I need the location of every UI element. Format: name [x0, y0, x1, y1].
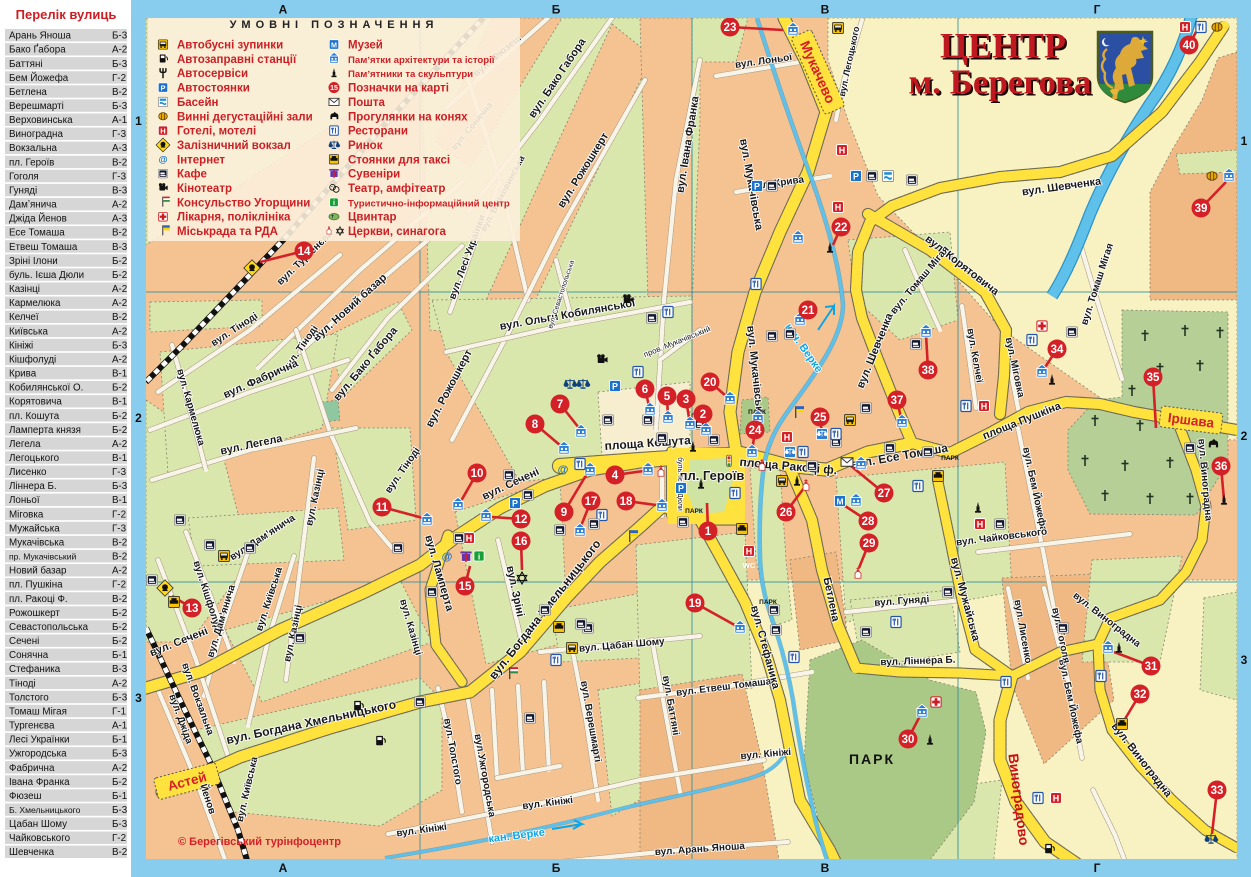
svg-text:Залізничний вокзал: Залізничний вокзал	[177, 140, 291, 152]
svg-text:А-2: А-2	[112, 200, 127, 211]
svg-text:29: 29	[863, 538, 876, 550]
svg-text:Сувеніри: Сувеніри	[348, 169, 400, 181]
svg-text:А-3: А-3	[112, 143, 128, 154]
svg-text:Ужгородська: Ужгородська	[9, 749, 67, 760]
svg-text:3: 3	[683, 394, 689, 406]
svg-text:Лесі Українки: Лесі Українки	[9, 735, 70, 746]
svg-text:В-2: В-2	[112, 847, 127, 858]
svg-text:Шевченка: Шевченка	[9, 847, 55, 858]
svg-text:12: 12	[515, 514, 528, 526]
svg-text:Міговка: Міговка	[9, 509, 44, 520]
svg-text:А-2: А-2	[112, 326, 127, 337]
svg-text:Цабан Шому: Цабан Шому	[9, 819, 67, 830]
svg-text:пл. Пушкіна: пл. Пушкіна	[9, 580, 63, 591]
svg-text:В-3: В-3	[112, 185, 128, 196]
svg-text:Б-2: Б-2	[112, 411, 127, 422]
svg-text:Винні дегустаційні зали: Винні дегустаційні зали	[177, 111, 313, 123]
svg-text:Міськрада та РДА: Міськрада та РДА	[177, 226, 278, 238]
svg-text:Б-3: Б-3	[112, 692, 128, 703]
svg-text:А-2: А-2	[112, 45, 127, 56]
svg-text:Позначки на карті: Позначки на карті	[348, 83, 449, 95]
svg-text:Інтернет: Інтернет	[177, 154, 225, 166]
svg-text:Легоцького: Легоцького	[9, 453, 60, 464]
svg-text:6: 6	[642, 384, 648, 396]
svg-text:27: 27	[878, 488, 891, 500]
svg-text:38: 38	[922, 365, 935, 377]
svg-text:Б. Хмельницького: Б. Хмельницького	[9, 805, 81, 815]
svg-text:Б: Б	[552, 3, 561, 17]
svg-text:Мужайська: Мужайська	[9, 523, 60, 534]
svg-text:Б-2: Б-2	[112, 425, 127, 436]
svg-text:Г-1: Г-1	[112, 706, 126, 717]
svg-text:31: 31	[1145, 661, 1158, 673]
svg-text:ЦЕНТР: ЦЕНТР	[940, 26, 1066, 66]
svg-text:Г-3: Г-3	[112, 467, 127, 478]
svg-text:Гуняді: Гуняді	[9, 185, 37, 196]
svg-text:Б-2: Б-2	[112, 383, 127, 394]
svg-text:17: 17	[585, 496, 598, 508]
svg-text:18: 18	[620, 496, 633, 508]
svg-text:Г-3: Г-3	[112, 523, 127, 534]
svg-text:Перелік вулиць: Перелік вулиць	[16, 7, 117, 22]
svg-text:Ринок: Ринок	[348, 140, 383, 152]
svg-text:Г: Г	[1094, 3, 1101, 17]
svg-text:34: 34	[1051, 344, 1064, 356]
svg-text:В-1: В-1	[112, 495, 127, 506]
svg-text:Б-3: Б-3	[112, 31, 128, 42]
svg-text:А: А	[279, 3, 288, 17]
svg-text:Сонячна: Сонячна	[9, 650, 49, 661]
svg-text:В: В	[821, 861, 830, 875]
svg-text:Б-2: Б-2	[112, 270, 127, 281]
svg-text:А-2: А-2	[112, 439, 127, 450]
svg-text:2: 2	[1241, 429, 1248, 443]
svg-text:Київська: Київська	[9, 326, 48, 337]
svg-text:Б-3: Б-3	[112, 481, 128, 492]
svg-text:39: 39	[1195, 203, 1208, 215]
svg-text:Казінці: Казінці	[9, 284, 40, 295]
svg-text:Ламперта князя: Ламперта князя	[9, 425, 81, 436]
svg-text:В-1: В-1	[112, 397, 127, 408]
svg-text:Автобусні зупинки: Автобусні зупинки	[177, 40, 283, 52]
svg-text:Новий базар: Новий базар	[9, 566, 67, 577]
svg-text:пр. Мукачівський: пр. Мукачівський	[9, 552, 76, 562]
svg-text:Вокзальна: Вокзальна	[9, 143, 58, 154]
svg-text:Прогулянки на конях: Прогулянки на конях	[348, 111, 468, 123]
svg-text:пл. Ракоці Ф.: пл. Ракоці Ф.	[9, 594, 68, 605]
svg-text:26: 26	[780, 507, 793, 519]
svg-text:Басейн: Басейн	[177, 97, 219, 109]
svg-text:Б-3: Б-3	[112, 340, 128, 351]
svg-text:Б-1: Б-1	[112, 650, 127, 661]
svg-text:2: 2	[700, 409, 706, 421]
svg-text:10: 10	[471, 468, 484, 480]
svg-text:Автосервіси: Автосервіси	[177, 68, 248, 80]
svg-text:Театр, амфітеатр: Театр, амфітеатр	[348, 183, 445, 195]
svg-text:Готелі, мотелі: Готелі, мотелі	[177, 126, 256, 138]
svg-text:Б: Б	[552, 861, 561, 875]
svg-text:В-3: В-3	[112, 664, 128, 675]
svg-text:Г-2: Г-2	[112, 833, 126, 844]
svg-text:Виноградна: Виноградна	[9, 129, 63, 140]
svg-text:В-2: В-2	[112, 537, 127, 548]
svg-text:9: 9	[561, 507, 567, 519]
svg-text:буль. Ієша Дюли: буль. Ієша Дюли	[9, 270, 84, 281]
svg-text:Б-3: Б-3	[112, 805, 128, 816]
svg-text:21: 21	[802, 305, 815, 317]
svg-text:Томаш Мігая: Томаш Мігая	[9, 706, 67, 717]
svg-text:Г-2: Г-2	[112, 580, 126, 591]
svg-text:24: 24	[749, 425, 762, 437]
svg-text:1: 1	[705, 526, 712, 538]
svg-text:Консульство Угорщини: Консульство Угорщини	[177, 197, 310, 209]
svg-text:1: 1	[135, 114, 142, 128]
svg-text:1: 1	[1241, 134, 1248, 148]
svg-text:Кінотеатр: Кінотеатр	[177, 183, 232, 195]
svg-text:8: 8	[532, 419, 539, 431]
svg-text:15: 15	[330, 85, 338, 92]
svg-text:36: 36	[1215, 461, 1228, 473]
svg-text:© Берегівський турінфоцентр: © Берегівський турінфоцентр	[178, 836, 341, 848]
svg-text:3: 3	[135, 691, 142, 705]
svg-text:Верховинська: Верховинська	[9, 115, 73, 126]
svg-text:19: 19	[689, 598, 702, 610]
svg-text:23: 23	[724, 22, 737, 34]
svg-text:А-1: А-1	[112, 115, 127, 126]
svg-text:37: 37	[891, 395, 904, 407]
svg-text:Б-3: Б-3	[112, 101, 128, 112]
svg-text:Сечені: Сечені	[9, 636, 39, 647]
svg-text:Г-2: Г-2	[112, 509, 126, 520]
svg-text:Кобилянської О.: Кобилянської О.	[9, 383, 83, 394]
svg-text:20: 20	[704, 377, 717, 389]
svg-text:Б-1: Б-1	[112, 791, 127, 802]
svg-text:Легела: Легела	[9, 439, 41, 450]
svg-text:Памʼятники та скульптури: Памʼятники та скульптури	[348, 69, 473, 80]
svg-text:Есе Томаша: Есе Томаша	[9, 228, 65, 239]
svg-text:Арань Яноша: Арань Яноша	[9, 31, 71, 42]
svg-text:В-2: В-2	[112, 228, 127, 239]
svg-text:25: 25	[814, 412, 827, 424]
svg-text:Б-2: Б-2	[112, 622, 127, 633]
svg-text:Б-3: Б-3	[112, 819, 128, 830]
svg-text:А-2: А-2	[112, 678, 127, 689]
svg-text:Тіноді: Тіноді	[9, 678, 36, 689]
svg-text:Бетлена: Бетлена	[9, 87, 47, 98]
svg-text:5: 5	[664, 391, 671, 403]
svg-text:Г-3: Г-3	[112, 171, 127, 182]
svg-text:Рожошкерт: Рожошкерт	[9, 608, 60, 619]
svg-text:В-2: В-2	[112, 552, 127, 563]
svg-text:А-2: А-2	[112, 566, 127, 577]
svg-text:Чайковського: Чайковського	[9, 833, 71, 844]
svg-text:Бако Ґабора: Бако Ґабора	[9, 44, 66, 56]
svg-text:Церкви, синагога: Церкви, синагога	[348, 226, 447, 238]
svg-text:16: 16	[515, 536, 528, 548]
svg-text:Крива: Крива	[9, 369, 37, 380]
svg-text:А-2: А-2	[112, 298, 127, 309]
svg-text:Стефаника: Стефаника	[9, 664, 61, 675]
svg-text:2: 2	[135, 411, 142, 425]
svg-text:А-1: А-1	[112, 721, 127, 732]
svg-text:В: В	[821, 3, 830, 17]
svg-text:Тургенєва: Тургенєва	[9, 721, 55, 732]
svg-text:Б-1: Б-1	[112, 735, 127, 746]
svg-text:Музей: Музей	[348, 40, 383, 52]
svg-text:22: 22	[835, 222, 848, 234]
svg-text:Г: Г	[1094, 861, 1101, 875]
svg-text:Г-3: Г-3	[112, 129, 127, 140]
svg-text:28: 28	[862, 516, 875, 528]
svg-text:В-1: В-1	[112, 453, 127, 464]
svg-text:В-3: В-3	[112, 242, 128, 253]
svg-text:Етвеш Томаша: Етвеш Томаша	[9, 242, 78, 253]
svg-text:В-2: В-2	[112, 312, 127, 323]
svg-text:13: 13	[186, 603, 199, 615]
svg-text:В-2: В-2	[112, 87, 127, 98]
svg-text:30: 30	[902, 734, 915, 746]
svg-text:Келчеї: Келчеї	[9, 312, 39, 323]
svg-text:Фюзеш: Фюзеш	[9, 791, 42, 802]
svg-text:Мукачівська: Мукачівська	[9, 537, 65, 548]
svg-text:Корятовича: Корятовича	[9, 397, 62, 408]
svg-text:Фабрична: Фабрична	[9, 763, 55, 774]
svg-text:Дамʼянича: Дамʼянича	[9, 200, 57, 211]
svg-text:7: 7	[557, 399, 563, 411]
svg-text:Кініжі: Кініжі	[9, 340, 33, 351]
svg-text:Лоньої: Лоньої	[9, 495, 40, 506]
svg-text:Б-3: Б-3	[112, 59, 128, 70]
svg-text:пл. Героїв: пл. Героїв	[680, 468, 745, 483]
svg-text:А: А	[279, 861, 288, 875]
svg-text:А-2: А-2	[112, 763, 127, 774]
svg-text:35: 35	[1147, 372, 1160, 384]
svg-text:Лікарня, поліклініка: Лікарня, поліклініка	[177, 212, 291, 224]
svg-text:Севастопольська: Севастопольська	[9, 622, 89, 633]
svg-text:Г-2: Г-2	[112, 73, 126, 84]
svg-text:Цвинтар: Цвинтар	[348, 212, 397, 224]
svg-text:Гоголя: Гоголя	[9, 171, 39, 182]
svg-text:Туристично-інформаційний центр: Туристично-інформаційний центр	[348, 198, 510, 209]
svg-text:33: 33	[1211, 785, 1224, 797]
svg-text:Автостоянки: Автостоянки	[177, 83, 250, 95]
svg-text:пл. Кошута: пл. Кошута	[9, 411, 60, 422]
svg-text:ПАРК: ПАРК	[685, 508, 703, 515]
svg-text:Лисенко: Лисенко	[9, 467, 47, 478]
svg-text:ПАРК: ПАРК	[941, 455, 959, 462]
svg-text:Ліннера Б.: Ліннера Б.	[9, 481, 57, 492]
svg-text:Стоянки для таксі: Стоянки для таксі	[348, 154, 450, 166]
svg-text:Бем Йожефа: Бем Йожефа	[9, 72, 69, 84]
svg-text:В-1: В-1	[112, 369, 127, 380]
svg-text:А-3: А-3	[112, 214, 128, 225]
svg-text:Б-2: Б-2	[112, 608, 127, 619]
svg-text:Автозаправні станції: Автозаправні станції	[177, 54, 297, 66]
svg-text:В-2: В-2	[112, 157, 127, 168]
svg-text:4: 4	[612, 470, 619, 482]
svg-text:Б-2: Б-2	[112, 636, 127, 647]
svg-text:Пошта: Пошта	[348, 97, 386, 109]
svg-text:м. Берегова: м. Берегова	[908, 63, 1091, 102]
svg-text:Б-3: Б-3	[112, 749, 128, 760]
svg-text:В-2: В-2	[112, 594, 127, 605]
svg-text:Кафе: Кафе	[177, 169, 207, 181]
svg-text:11: 11	[376, 502, 389, 514]
svg-text:Кармелюка: Кармелюка	[9, 298, 61, 309]
svg-text:Памʼятки архітектури та історі: Памʼятки архітектури та історії	[348, 55, 495, 66]
svg-text:3: 3	[1241, 653, 1248, 667]
svg-text:40: 40	[1183, 40, 1196, 52]
svg-text:А-2: А-2	[112, 284, 127, 295]
svg-text:пл. Героїв: пл. Героїв	[9, 157, 54, 168]
svg-text:Б-2: Б-2	[112, 256, 127, 267]
svg-text:Зріні Ілони: Зріні Ілони	[9, 256, 58, 267]
svg-text:Толстого: Толстого	[9, 692, 49, 703]
svg-text:Кішфолуді: Кішфолуді	[9, 354, 56, 365]
svg-text:14: 14	[298, 246, 311, 258]
svg-text:ПАРК: ПАРК	[849, 751, 895, 767]
svg-text:Джіда Йенов: Джіда Йенов	[9, 213, 67, 225]
svg-text:15: 15	[459, 581, 472, 593]
svg-text:Верешмарті: Верешмарті	[9, 101, 64, 112]
svg-text:А-2: А-2	[112, 354, 127, 365]
svg-text:Ресторани: Ресторани	[348, 126, 408, 138]
svg-text:Б-2: Б-2	[112, 777, 127, 788]
svg-text:32: 32	[1134, 689, 1147, 701]
svg-text:Баттяні: Баттяні	[9, 59, 43, 70]
svg-text:Івана Франка: Івана Франка	[9, 777, 70, 788]
svg-text:УМОВНІ ПОЗНАЧЕННЯ: УМОВНІ ПОЗНАЧЕННЯ	[230, 19, 439, 31]
